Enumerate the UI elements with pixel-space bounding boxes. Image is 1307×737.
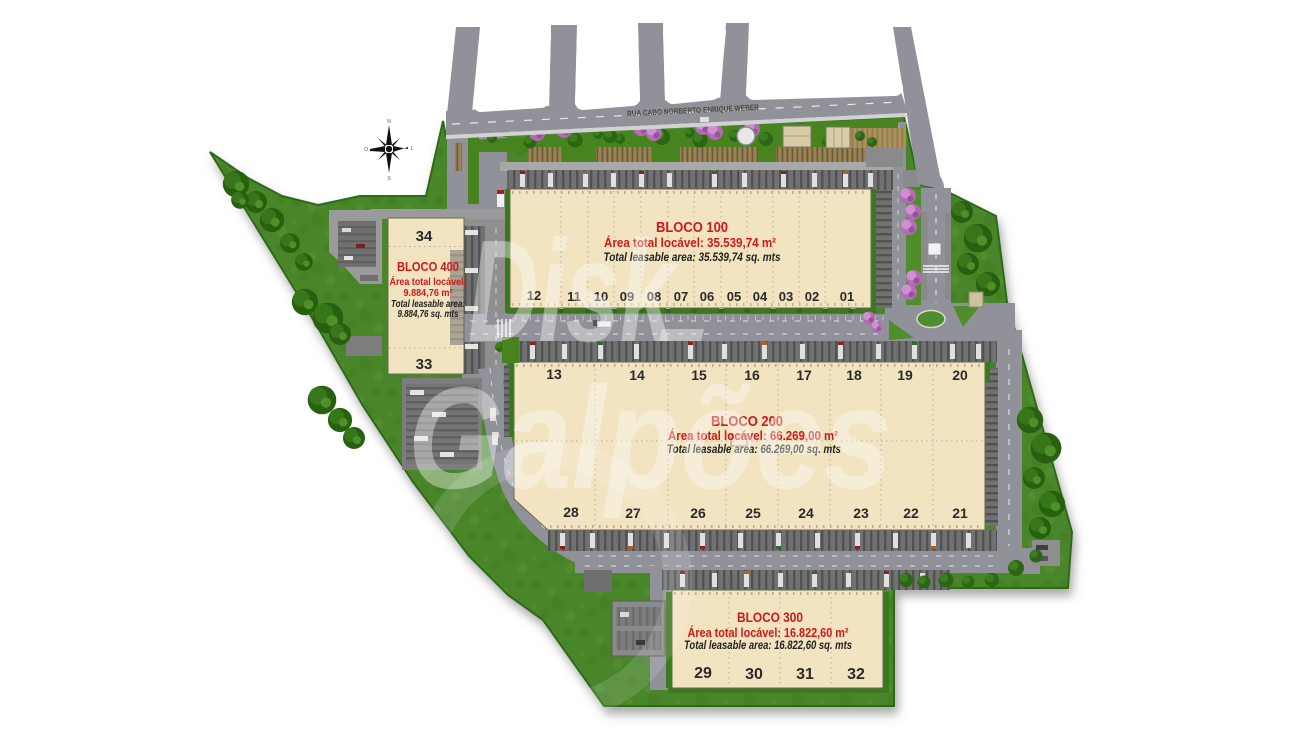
svg-text:21: 21 bbox=[952, 505, 968, 521]
svg-text:22: 22 bbox=[903, 505, 919, 521]
svg-text:04: 04 bbox=[753, 289, 768, 304]
svg-text:19: 19 bbox=[897, 367, 913, 383]
svg-text:Disk: Disk bbox=[468, 210, 678, 372]
svg-text:03: 03 bbox=[779, 289, 793, 304]
svg-text:01: 01 bbox=[840, 289, 854, 304]
svg-text:9.884,76 sq. mts: 9.884,76 sq. mts bbox=[398, 309, 459, 320]
svg-text:Galpões: Galpões bbox=[408, 357, 892, 519]
svg-text:06: 06 bbox=[700, 289, 714, 304]
svg-text:9.884,76 m²: 9.884,76 m² bbox=[404, 287, 453, 299]
svg-text:05: 05 bbox=[727, 289, 741, 304]
svg-text:30: 30 bbox=[745, 666, 763, 683]
svg-text:31: 31 bbox=[796, 666, 814, 683]
svg-text:32: 32 bbox=[847, 666, 865, 683]
svg-text:BLOCO 400: BLOCO 400 bbox=[397, 260, 459, 274]
svg-text:BLOCO 300: BLOCO 300 bbox=[737, 609, 803, 625]
svg-text:20: 20 bbox=[952, 367, 968, 383]
svg-text:29: 29 bbox=[694, 665, 712, 682]
svg-text:Área total locável: 16.822,60: Área total locável: 16.822,60 m² bbox=[688, 625, 849, 640]
svg-text:O: O bbox=[364, 147, 368, 153]
svg-text:34: 34 bbox=[416, 228, 433, 245]
svg-text:07: 07 bbox=[674, 289, 688, 304]
svg-text:N: N bbox=[387, 119, 391, 125]
svg-text:Total leasable area: 16.822,60: Total leasable area: 16.822,60 sq. mts bbox=[684, 640, 852, 652]
svg-text:02: 02 bbox=[805, 289, 819, 304]
svg-text:L: L bbox=[411, 146, 414, 152]
